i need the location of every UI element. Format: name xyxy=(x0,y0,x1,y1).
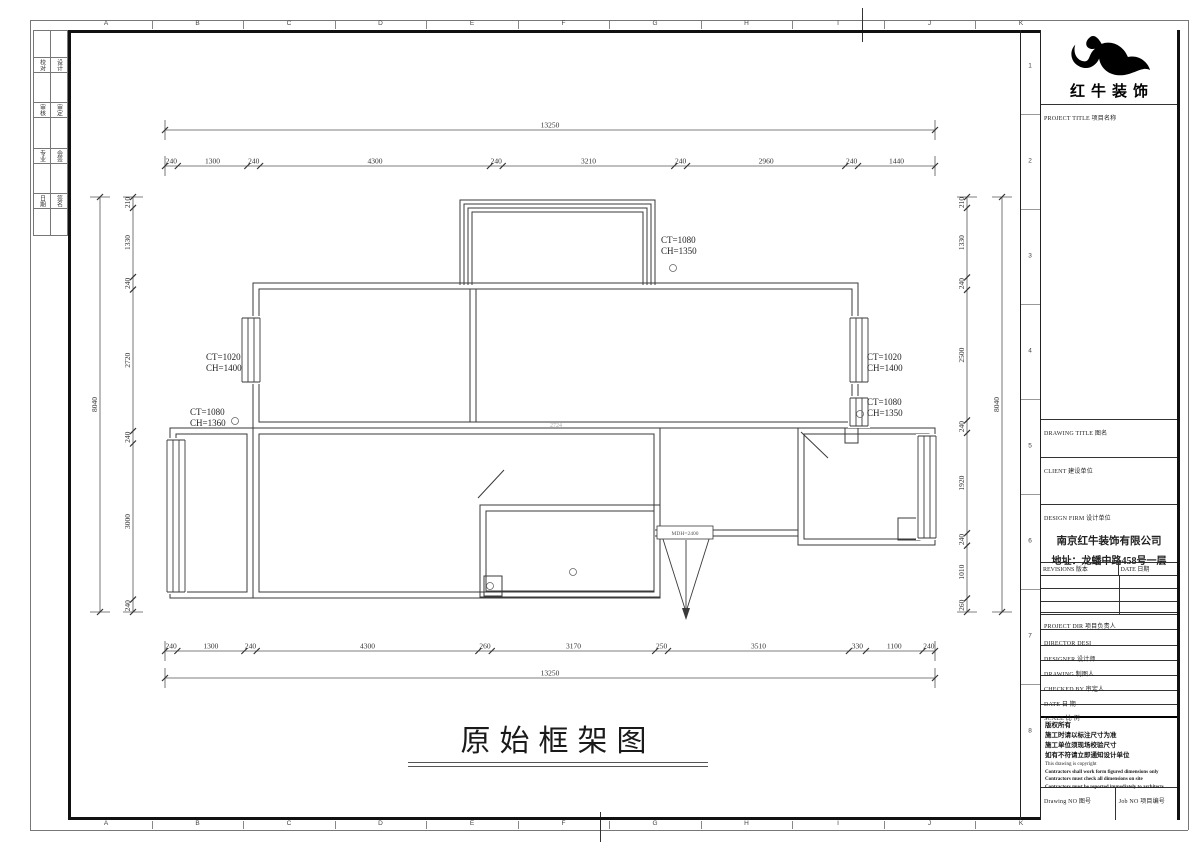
revision-row xyxy=(1041,576,1177,589)
dim-value: 2720 xyxy=(123,353,132,368)
dim-value: 2960 xyxy=(759,157,774,166)
project-title-label: PROJECT TITLE 项目名称 xyxy=(1044,116,1116,122)
dim-value: 1330 xyxy=(957,235,966,250)
beam-annotation: CH=1350 xyxy=(867,408,903,418)
beam-annotation: CH=1360 xyxy=(190,418,226,428)
dim-value: 240 xyxy=(846,157,858,166)
design-firm-label: DESIGN FIRM 设计单位 xyxy=(1044,516,1111,522)
caption-underline-2 xyxy=(408,766,708,767)
dim-value: 1100 xyxy=(887,642,902,651)
dim-value: 2500 xyxy=(957,347,966,362)
scale-section: SCALE 比 例 xyxy=(1041,705,1177,718)
dim-value: 240 xyxy=(123,600,132,612)
beam-annotation: CH=1400 xyxy=(867,363,903,373)
dim-value: 240 xyxy=(166,157,178,166)
dim-value: 240 xyxy=(923,642,935,651)
notice-line: Contractors shall work form figured dime… xyxy=(1045,769,1173,777)
door-label: MDH=2400 xyxy=(672,531,699,537)
copyright-notice: 版权所有施工时请以标注尺寸为准施工单位须现场校验尺寸如有不符请立即通知设计单位T… xyxy=(1041,718,1177,788)
revisions-section: REVISIONS 版本 DATE 日期 xyxy=(1041,563,1177,613)
dim-value: 1300 xyxy=(203,642,218,651)
dim-value: 260 xyxy=(957,599,966,611)
drawing-title-label: DRAWING TITLE 图名 xyxy=(1044,431,1107,437)
client-label: CLIENT 建设单位 xyxy=(1044,469,1093,475)
revisions-date-label: DATE 日期 xyxy=(1119,563,1177,575)
project-title-section: PROJECT TITLE 项目名称 xyxy=(1041,105,1177,420)
revision-cell xyxy=(1041,576,1120,588)
dim-value: 8040 xyxy=(90,397,99,412)
title-block: 红牛装饰 PROJECT TITLE 项目名称 DRAWING TITLE 图名… xyxy=(1040,30,1177,820)
client-section: CLIENT 建设单位 xyxy=(1041,458,1177,505)
dim-value: 4300 xyxy=(368,157,383,166)
dim-value: 240 xyxy=(248,157,260,166)
column-circle xyxy=(487,583,494,590)
revision-row xyxy=(1041,589,1177,602)
dim-value: 3510 xyxy=(751,642,766,651)
entry-door xyxy=(662,536,710,620)
notice-line: 版权所有 xyxy=(1045,721,1173,731)
dim-value: 1330 xyxy=(123,235,132,250)
job-no-cell: Job NO 项目编号 xyxy=(1116,788,1168,820)
dim-value: 13250 xyxy=(541,121,560,130)
dim-value: 13250 xyxy=(541,669,560,678)
bull-logo-icon xyxy=(1057,34,1161,80)
dim-value: 250 xyxy=(656,642,668,651)
beam-annotation: CH=1400 xyxy=(206,363,242,373)
revision-cell xyxy=(1120,576,1177,588)
dim-value: 240 xyxy=(957,421,966,433)
brand-name: 红牛装饰 xyxy=(1064,80,1154,101)
drawing-number-section: Drawing NO 图号 Job NO 项目编号 xyxy=(1041,788,1177,820)
dim-value: 240 xyxy=(491,157,503,166)
dim-value: 1300 xyxy=(205,157,220,166)
dim-value: 240 xyxy=(166,642,178,651)
project-dir-section: PROJECT DIR 项目负责人 xyxy=(1041,613,1177,630)
revisions-label: REVISIONS 版本 xyxy=(1041,563,1119,575)
drawing-caption-text: 原始框架图 xyxy=(408,716,708,760)
column-circle xyxy=(232,418,239,425)
dim-value: 240 xyxy=(675,157,687,166)
column-circle xyxy=(570,569,577,576)
beam-annotation: CT=1020 xyxy=(867,352,902,362)
dim-value: 1440 xyxy=(889,157,904,166)
dim-value: 330 xyxy=(852,642,864,651)
caption-underline-1 xyxy=(408,762,708,763)
dim-value: 1010 xyxy=(957,564,966,579)
drawing-no-cell: Drawing NO 图号 xyxy=(1041,788,1116,820)
dim-value: 210 xyxy=(123,197,132,209)
revision-cell xyxy=(1120,589,1177,601)
beam-annotation: CT=1080 xyxy=(190,407,225,417)
designer-section: DESIGNER 设计师 xyxy=(1041,646,1177,661)
center-label: 2724 xyxy=(550,423,562,429)
floor-plan-walls xyxy=(170,200,935,598)
dim-value: 240 xyxy=(957,278,966,290)
dim-value: 3210 xyxy=(581,157,596,166)
notice-line: 如有不符请立即通知设计单位 xyxy=(1045,751,1173,761)
drawing-sheet: ABCDEFGHIJK ABCDEFGHIJK 12345678 校对设计审核审… xyxy=(0,0,1200,844)
notice-line: 施工单位须现场校验尺寸 xyxy=(1045,741,1173,751)
director-section: DIRECTOR DESI xyxy=(1041,630,1177,646)
beam-annotation: CT=1020 xyxy=(206,352,241,362)
drawing-title-section: DRAWING TITLE 图名 xyxy=(1041,420,1177,458)
dim-value: 4300 xyxy=(360,642,375,651)
beam-annotation: CT=1080 xyxy=(661,235,696,245)
dim-value: 210 xyxy=(957,197,966,209)
company-logo: 红牛装饰 xyxy=(1041,30,1177,105)
notice-line: This drawing is copyright xyxy=(1045,761,1173,769)
column-circle xyxy=(670,265,677,272)
firm-name: 南京红牛装饰有限公司 xyxy=(1044,533,1174,548)
drawing-caption: 原始框架图 xyxy=(408,716,708,767)
dim-value: 240 xyxy=(123,431,132,443)
dim-value: 260 xyxy=(479,642,491,651)
design-firm-section: DESIGN FIRM 设计单位 南京红牛装饰有限公司 地址：龙蟠中路458号一… xyxy=(1041,505,1177,563)
dim-value: 1920 xyxy=(957,475,966,490)
notice-line: Contractors must check all dimensions on… xyxy=(1045,776,1173,784)
dim-value: 3000 xyxy=(123,514,132,529)
dim-value: 3170 xyxy=(566,642,581,651)
dim-value: 240 xyxy=(957,534,966,546)
beam-annotation: CT=1080 xyxy=(867,397,902,407)
job-no-label: Job NO 项目编号 xyxy=(1119,799,1165,805)
revision-cell xyxy=(1041,589,1120,601)
dim-value: 8040 xyxy=(992,397,1001,412)
notice-line: 施工时请以标注尺寸为准 xyxy=(1045,731,1173,741)
drawing-person-section: DRAWING 制图人 xyxy=(1041,661,1177,676)
date-section: DATE 日 期 xyxy=(1041,691,1177,705)
beam-annotation: CH=1350 xyxy=(661,246,697,256)
revisions-header: REVISIONS 版本 DATE 日期 xyxy=(1041,563,1177,576)
drawing-no-label: Drawing NO 图号 xyxy=(1044,799,1091,805)
dim-value: 240 xyxy=(245,642,257,651)
checked-by-section: CHECKED BY 审定人 xyxy=(1041,676,1177,691)
dim-value: 240 xyxy=(123,277,132,289)
windows xyxy=(165,316,938,594)
